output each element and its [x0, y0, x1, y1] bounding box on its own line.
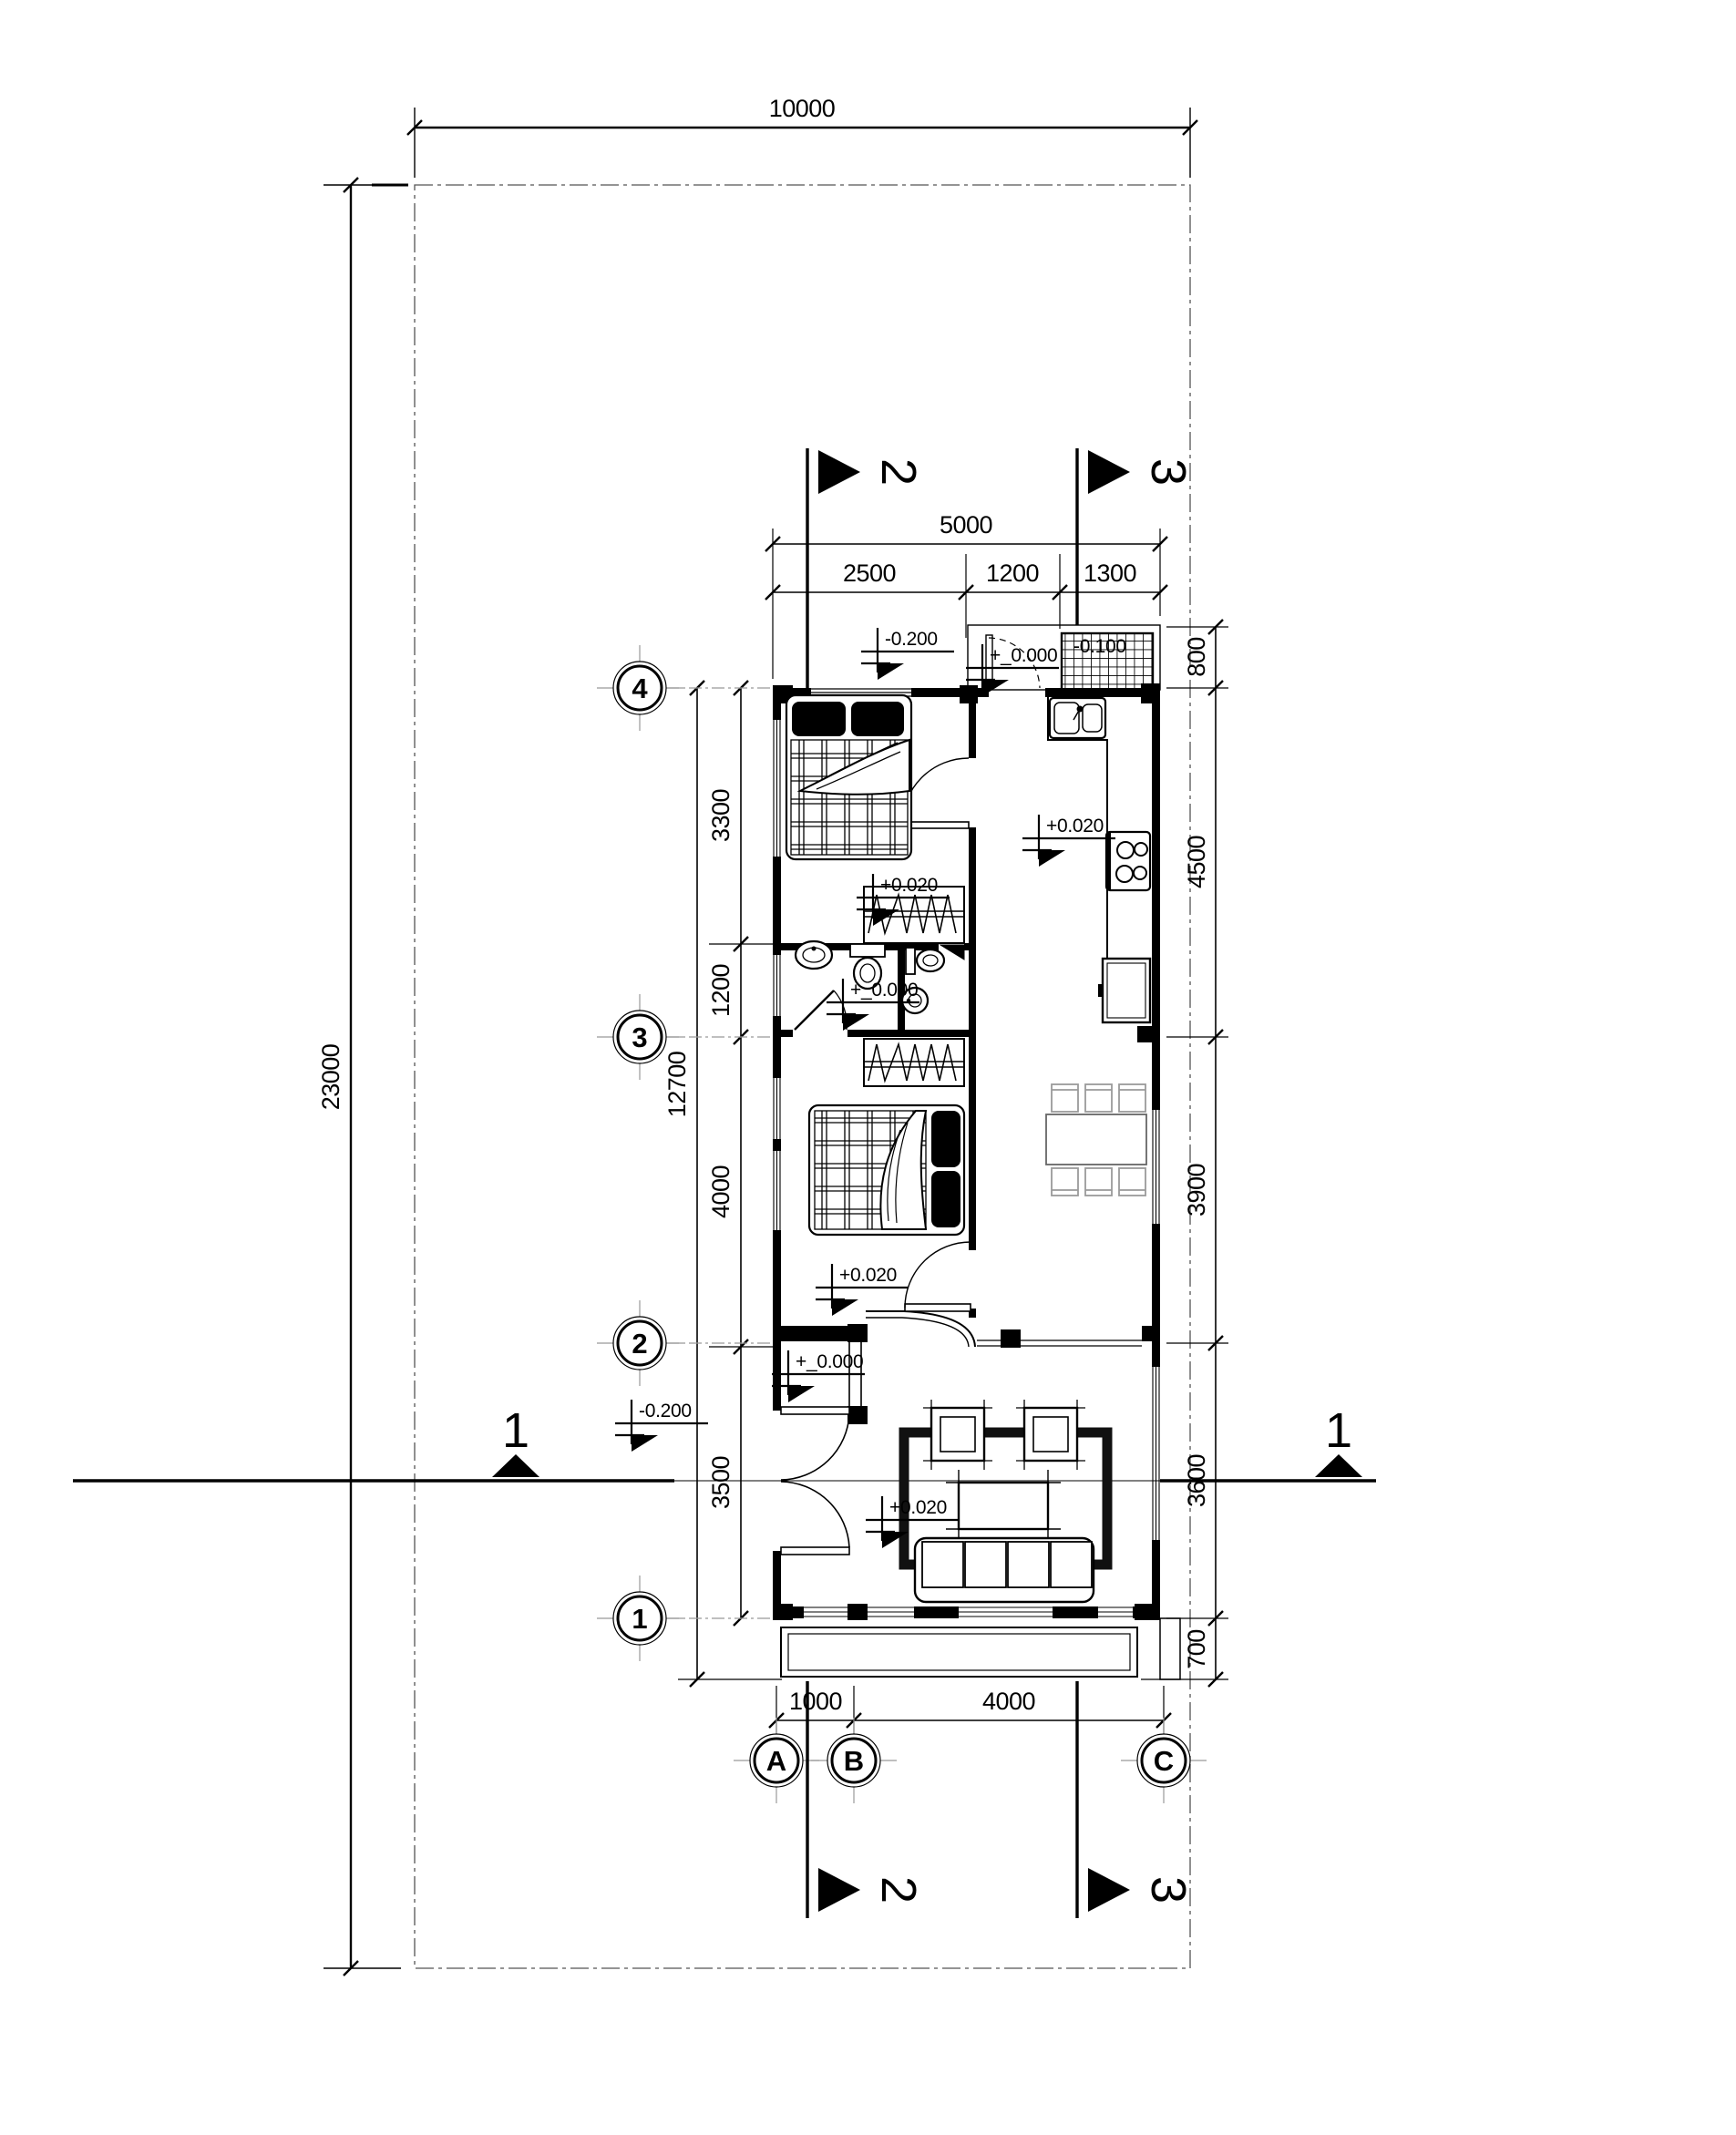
level-kitchen: +0.020: [1022, 815, 1115, 867]
section-3-top-arrow: [1088, 450, 1130, 494]
front-porch: [781, 1618, 1180, 1679]
grid-row-1: 1: [597, 1576, 773, 1661]
wardrobe-2: [864, 1039, 964, 1086]
svg-text:-0.200: -0.200: [639, 1401, 692, 1422]
grid-label-B: B: [844, 1745, 864, 1777]
bedroom-2: [809, 1039, 964, 1235]
grid-label-2: 2: [632, 1328, 647, 1360]
bed2-pillow-bottom: [931, 1171, 960, 1227]
window-dining-east: [1153, 1110, 1159, 1224]
dim-left-2: 1200: [707, 964, 734, 1017]
grid-row-4: 4: [597, 645, 773, 731]
svg-text:+0.020: +0.020: [839, 1265, 897, 1286]
level-back-porch: -0.100: [1073, 636, 1126, 657]
grid-label-3: 3: [632, 1021, 647, 1053]
bed1-pillow-right: [851, 702, 904, 736]
dim-left-total: 12700: [663, 1052, 691, 1118]
kitchen: [1048, 696, 1150, 1022]
grid-row-2: 2: [597, 1300, 773, 1386]
section-2-bottom-arrow: [818, 1868, 860, 1912]
window-bedroom1-west: [774, 720, 780, 857]
grid-label-1: 1: [632, 1603, 647, 1635]
grid-label-C: C: [1154, 1745, 1174, 1777]
dimensions-left: 3300 1200 4000 3500 12700: [663, 681, 782, 1687]
grid-col-B: B: [811, 1718, 897, 1803]
dim-right-1: 800: [1183, 637, 1210, 677]
bedroom-1: [786, 695, 964, 943]
dim-left-3: 4000: [707, 1165, 734, 1218]
svg-text:+_0.000: +_0.000: [850, 980, 918, 1001]
svg-text:-0.200: -0.200: [885, 629, 938, 650]
window-bath-west: [774, 955, 780, 1016]
dim-right-2: 4500: [1183, 836, 1210, 888]
refrigerator: [1098, 959, 1150, 1022]
svg-text:+_0.000: +_0.000: [796, 1351, 863, 1372]
level-bedroom2: +0.020: [816, 1264, 909, 1316]
dim-site-depth-label: 23000: [317, 1044, 344, 1111]
dim-left-4: 3500: [707, 1456, 734, 1509]
level-vestibule: +_0.000: [772, 1350, 865, 1402]
window-living-east: [1153, 1367, 1159, 1540]
armchair-2: [1016, 1400, 1085, 1470]
bedroom2-door: [905, 1242, 971, 1311]
dim-site-width-label: 10000: [769, 95, 836, 122]
bed1-pillow-left: [792, 702, 846, 736]
floor-plan-sheet: 10000 23000 5000 2500 1200 1300 800 4500…: [0, 0, 1736, 2135]
stove: [1106, 832, 1150, 890]
grid-label-A: A: [766, 1745, 786, 1777]
sofa: [915, 1538, 1094, 1602]
section-3-bottom-arrow: [1088, 1868, 1130, 1912]
dimension-site-width: 10000: [407, 95, 1197, 178]
dim-top-2: 1200: [986, 559, 1039, 587]
dim-top-total: 5000: [940, 511, 992, 539]
svg-text:+_0.000: +_0.000: [990, 645, 1057, 666]
bath-door: [795, 991, 847, 1030]
dining-set: [1046, 1084, 1146, 1196]
bath2-toilet-bowl: [917, 949, 944, 971]
dim-right-3: 3900: [1183, 1164, 1210, 1216]
window-bedroom2-west-2: [774, 1151, 780, 1230]
dim-top-3: 1300: [1084, 559, 1136, 587]
section-2-bottom-label: 2: [871, 1876, 926, 1904]
floor-plan-drawing: 10000 23000 5000 2500 1200 1300 800 4500…: [0, 0, 1736, 2135]
dim-left-1: 3300: [707, 789, 734, 842]
window-bedroom2-west-1: [774, 1078, 780, 1139]
dining-table: [1046, 1114, 1146, 1165]
kitchen-sink: [1050, 698, 1105, 738]
dim-bottom-2: 4000: [982, 1688, 1035, 1715]
dim-top-1: 2500: [843, 559, 896, 587]
front-porch-side-step: [1160, 1618, 1180, 1679]
section-3-top-label: 3: [1141, 458, 1196, 486]
section-1-left-label: 1: [502, 1403, 529, 1458]
grid-col-C: C: [1121, 1718, 1207, 1803]
dim-bottom-1: 1000: [789, 1688, 842, 1715]
dim-right-5: 700: [1183, 1629, 1210, 1669]
dimensions-bottom: 1000 4000: [769, 1686, 1171, 1737]
window-front-3: [1098, 1607, 1133, 1617]
grid-markers-left: 4 3 2 1: [597, 645, 773, 1661]
bed2-pillow-top: [931, 1111, 960, 1167]
svg-text:+0.020: +0.020: [880, 875, 938, 896]
svg-text:+0.020: +0.020: [1046, 816, 1104, 837]
section-1-right-label: 1: [1325, 1403, 1352, 1458]
section-2-top-label: 2: [871, 458, 926, 486]
bath1-toilet-tank: [850, 944, 885, 957]
dimension-site-depth: 23000: [317, 178, 401, 1976]
svg-text:+0.020: +0.020: [889, 1497, 947, 1518]
armchair-1: [923, 1400, 992, 1470]
grid-label-4: 4: [632, 672, 648, 704]
window-front-2: [959, 1607, 1053, 1617]
level-front-yard: -0.200: [861, 628, 954, 680]
bath1-sink: [796, 941, 832, 969]
grid-markers-bottom: A B C: [734, 1718, 1207, 1803]
svg-text:-0.100: -0.100: [1073, 636, 1126, 657]
section-2-top-arrow: [818, 450, 860, 494]
bath2-toilet-tank: [906, 948, 915, 974]
level-entry-yard: -0.200: [615, 1400, 708, 1452]
section-3-bottom-label: 3: [1141, 1876, 1196, 1904]
